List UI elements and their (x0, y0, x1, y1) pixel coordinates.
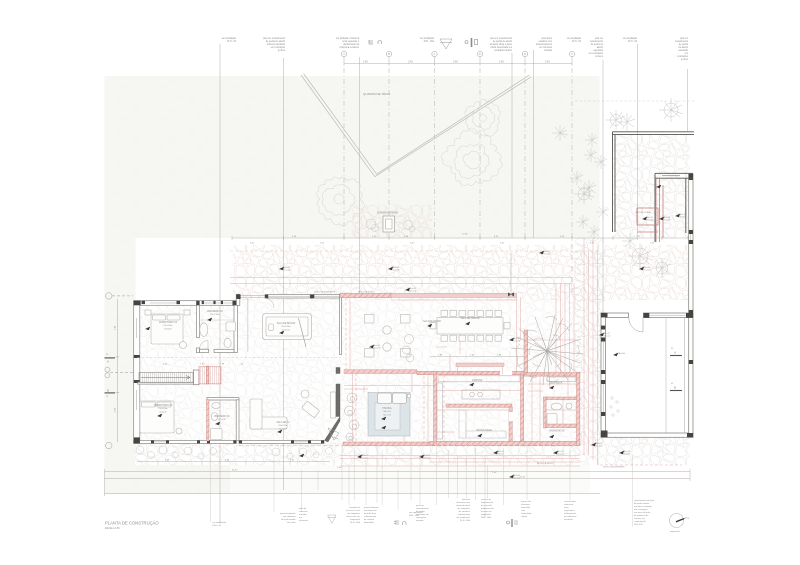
svg-text:asentado: asentado (594, 49, 604, 52)
svg-text:COZINHA: COZINHA (472, 379, 483, 382)
svg-text:de pedra de alenfo: de pedra de alenfo (493, 40, 513, 43)
svg-text:trilofe desenhado em: trilofe desenhado em (491, 46, 513, 49)
svg-text:revestimento: revestimento (590, 40, 604, 43)
svg-text:N=50.00: N=50.00 (159, 411, 166, 413)
svg-text:revestimento: revestimento (416, 507, 429, 510)
svg-text:arriscos shole o parte: arriscos shole o parte (490, 43, 513, 46)
svg-text:de tijolo furado: de tijolo furado (281, 518, 296, 521)
svg-text:PLANTA DE CONSTRUÇÃO: PLANTA DE CONSTRUÇÃO (105, 521, 159, 526)
svg-text:2.40: 2.40 (545, 61, 550, 64)
svg-text:FLH - 00d: FLH - 00d (350, 522, 361, 524)
svg-text:B: B (674, 386, 676, 390)
svg-text:je duro: je duro (680, 58, 689, 61)
svg-text:BLOCO A EXISTENTE: BLOCO A EXISTENTE (314, 291, 336, 294)
svg-text:em concreto: em concreto (539, 46, 552, 49)
svg-text:je duro: je duro (277, 49, 286, 52)
svg-text:cobertura existente: cobertura existente (339, 46, 359, 49)
svg-text:alçapão de: alçapão de (349, 506, 360, 509)
svg-text:de pedra de alenfo: de pedra de alenfo (266, 40, 286, 43)
svg-text:de máquinas: de máquinas (347, 513, 360, 515)
svg-text:DESPENSA: DESPENSA (550, 382, 563, 385)
svg-text:em alvenaria: em alvenaria (283, 515, 296, 518)
svg-text:BLOCO B NOVO: BLOCO B NOVO (537, 463, 553, 465)
svg-text:de canteias: de canteias (459, 510, 471, 513)
svg-text:FLH - 00: FLH - 00 (572, 41, 582, 43)
svg-text:piso em: piso em (595, 38, 603, 40)
svg-text:FLH - 00d: FLH - 00d (460, 520, 471, 522)
svg-text:de canteia: de canteia (364, 518, 375, 521)
svg-text:NO+0.37: NO+0.37 (623, 454, 630, 456)
svg-text:cobertura: cobertura (564, 503, 574, 506)
svg-text:NO+0.08: NO+0.08 (409, 291, 416, 293)
svg-text:arriscos asentado: arriscos asentado (267, 43, 286, 46)
svg-text:PD=2.80m: PD=2.80m (211, 314, 220, 316)
svg-text:FLH - 00d: FLH - 00d (481, 517, 492, 519)
svg-text:ver ampliação: ver ampliação (420, 37, 435, 40)
svg-text:PD=2.80m: PD=2.80m (164, 325, 173, 327)
svg-text:existente: existente (564, 518, 574, 521)
svg-text:BLOCO A NOVO: BLOCO A NOVO (358, 291, 374, 294)
svg-text:alvenaria: alvenaria (299, 519, 309, 522)
svg-text:ver ampliação: ver ampliação (567, 37, 582, 40)
svg-text:em fachada: cobertura: em fachada: cobertura (336, 37, 360, 40)
svg-text:SALA DE TV: SALA DE TV (276, 421, 290, 424)
svg-text:FLH - 00a: FLH - 00a (424, 41, 435, 43)
svg-text:metálico com: metálico com (538, 40, 552, 43)
svg-text:ver ampliação: ver ampliação (456, 516, 470, 519)
svg-text:em contrapiso: em contrapiso (634, 508, 649, 511)
svg-text:NO+0.20: NO+0.20 (595, 446, 602, 448)
svg-text:sociais; ver: sociais; ver (634, 517, 645, 520)
svg-text:revestido: revestido (521, 506, 531, 509)
svg-text:DORMITÓRIO 03: DORMITÓRIO 03 (159, 321, 178, 324)
svg-text:NA+1.00: NA+1.00 (383, 410, 390, 413)
svg-text:N=50.00: N=50.00 (164, 328, 171, 330)
svg-text:PD=2.80m: PD=2.80m (282, 326, 291, 328)
svg-text:NO+0.20: NO+0.20 (423, 458, 430, 460)
svg-text:de pedra alenfo: de pedra alenfo (634, 502, 650, 505)
svg-text:NO+1.04: NO+1.04 (383, 414, 391, 416)
svg-text:PISCINA: PISCINA (382, 407, 392, 410)
svg-text:SAUNA ÚMIDA: SAUNA ÚMIDA (476, 429, 492, 432)
svg-text:LAREIRA EXTERNA: LAREIRA EXTERNA (377, 212, 399, 215)
svg-text:BANHEIRO 05: BANHEIRO 05 (549, 430, 565, 433)
svg-text:máquinas da: máquinas da (481, 508, 494, 510)
svg-text:ver ampliação: ver ampliação (623, 37, 638, 40)
svg-text:SALA DE ESTAR: SALA DE ESTAR (423, 320, 441, 323)
svg-text:17.06: 17.06 (462, 234, 468, 236)
svg-text:apoio do deck: apoio do deck (456, 505, 471, 507)
svg-text:alenfo: alenfo (597, 47, 604, 49)
svg-text:A: A (674, 351, 676, 355)
svg-text:posicionamento: posicionamento (536, 43, 553, 46)
svg-text:de pedra: de pedra (679, 43, 689, 46)
svg-text:NO+0.08: NO+0.08 (373, 348, 380, 350)
svg-text:27.21: 27.21 (520, 477, 526, 479)
svg-text:pilar de: pilar de (299, 507, 307, 510)
svg-text:concreto: concreto (299, 510, 308, 513)
svg-text:nova: nova (564, 507, 570, 509)
svg-text:em fachada:: em fachada: (564, 501, 576, 503)
svg-text:no itens: no itens (595, 55, 604, 58)
svg-text:manutenção: manutenção (481, 501, 494, 504)
svg-text:da cobertura: da cobertura (564, 515, 577, 518)
svg-text:ver ampliação: ver ampliação (222, 37, 237, 40)
svg-text:contrapiso ardoro: contrapiso ardoro (494, 49, 513, 52)
svg-text:SALA DE JANTAR: SALA DE JANTAR (461, 317, 480, 320)
svg-text:2.40: 2.40 (499, 61, 504, 64)
svg-text:QUADRA DE TÊNIS: QUADRA DE TÊNIS (363, 91, 390, 96)
svg-text:NO+0.40: NO+0.40 (679, 217, 686, 219)
svg-text:asentado em: asentado em (416, 513, 429, 516)
svg-text:DORMITÓRIO 02: DORMITÓRIO 02 (154, 404, 173, 407)
svg-text:NO+0.20: NO+0.20 (557, 454, 564, 456)
svg-text:implantação: implantação (670, 530, 680, 533)
svg-text:PD=2.80m: PD=2.80m (279, 425, 288, 427)
svg-text:da casa de: da casa de (481, 505, 492, 507)
svg-text:BANHEIRO 03: BANHEIRO 03 (207, 310, 223, 313)
svg-text:de alenfo: de alenfo (679, 47, 689, 49)
svg-text:7 m²: 7 m² (337, 466, 342, 469)
svg-text:NO+0.37: NO+0.37 (497, 454, 504, 456)
svg-text:acesso à casa: acesso à casa (346, 510, 361, 512)
svg-text:NO+0.40: NO+0.40 (643, 270, 650, 272)
svg-text:submetendo: submetendo (364, 515, 377, 518)
svg-text:pista túnel: pista túnel (542, 37, 553, 40)
svg-text:em duro asentado: em duro asentado (634, 505, 652, 508)
svg-text:ver ampliação: ver ampliação (213, 521, 227, 524)
svg-text:NO+0.08: NO+0.08 (392, 270, 399, 272)
svg-text:NO+0.20: NO+0.20 (361, 458, 368, 460)
svg-text:FLH-100: FLH-100 (634, 524, 643, 526)
svg-text:NO+0.08: NO+0.08 (543, 254, 550, 256)
svg-text:cimentado: cimentado (521, 512, 532, 515)
svg-text:contrapiso: contrapiso (416, 516, 427, 519)
svg-text:nova seguindo o: nova seguindo o (342, 41, 360, 43)
svg-text:31.42: 31.42 (232, 469, 238, 471)
svg-text:SALA DE BILHAR: SALA DE BILHAR (277, 322, 296, 325)
svg-text:piscina ver: piscina ver (481, 510, 492, 513)
svg-text:NO+0.40: NO+0.40 (663, 220, 670, 222)
svg-text:N=50.00: N=50.00 (279, 428, 286, 430)
svg-text:piso em revestimento: piso em revestimento (490, 37, 513, 40)
svg-text:7 m²: 7 m² (492, 471, 497, 474)
svg-text:revestimento: revestimento (675, 40, 689, 43)
svg-text:piso em: piso em (416, 505, 424, 507)
svg-text:de mão fosa: de mão fosa (364, 512, 377, 515)
svg-text:posicionamento: posicionamento (280, 512, 296, 515)
svg-text:2.40: 2.40 (453, 61, 458, 64)
svg-text:alinhamento: alinhamento (564, 512, 577, 515)
svg-text:com: com (521, 510, 525, 512)
svg-text:de pedra de: de pedra de (591, 43, 604, 46)
svg-text:em: em (685, 53, 688, 55)
svg-text:2.40: 2.40 (408, 61, 413, 64)
svg-text:seguindo o: seguindo o (564, 510, 575, 512)
svg-text:alvenaria: alvenaria (521, 503, 531, 506)
svg-text:ampliação: ampliação (350, 518, 361, 521)
svg-text:de potência da: de potência da (634, 514, 649, 517)
svg-text:2.40: 2.40 (363, 61, 368, 64)
svg-text:DEPÓSITO/CASA: DEPÓSITO/CASA (635, 211, 651, 214)
svg-text:contrapiso: contrapiso (677, 55, 688, 58)
svg-text:B: B (107, 389, 109, 393)
svg-text:continuação: continuação (634, 520, 647, 523)
svg-text:NO+0.20: NO+0.20 (603, 336, 610, 338)
svg-text:piso em revestimento: piso em revestimento (263, 37, 286, 40)
svg-text:em alvenaria: em alvenaria (364, 509, 377, 512)
svg-text:rúpolo: rúpolo (521, 515, 528, 518)
svg-text:revestimento de piso: revestimento de piso (634, 499, 655, 502)
svg-text:armado: armado (416, 519, 424, 522)
svg-text:da piscina ver: da piscina ver (347, 515, 361, 518)
svg-text:de pedra: de pedra (416, 510, 425, 513)
svg-text:PD=2.80: PD=2.80 (218, 419, 225, 421)
svg-text:acesso de: acesso de (481, 499, 492, 501)
svg-text:FLH - 00: FLH - 00 (227, 41, 237, 43)
svg-text:de canto: de canto (287, 521, 296, 524)
svg-text:NA+0.40: NA+0.40 (618, 352, 625, 355)
svg-text:em duro de linho: em duro de linho (634, 511, 651, 514)
svg-text:em contrapiso: em contrapiso (271, 46, 286, 49)
svg-text:base de: base de (462, 499, 471, 501)
svg-text:de máquinas: de máquinas (457, 508, 470, 510)
svg-text:alvenaria para: alvenaria para (456, 501, 471, 504)
svg-text:NO+0.08: NO+0.08 (513, 341, 520, 343)
svg-text:FLH - 00: FLH - 00 (213, 525, 222, 527)
svg-text:submetendo: submetendo (458, 513, 471, 516)
svg-text:alinhamento da: alinhamento da (343, 43, 359, 46)
svg-text:em contrapiso: em contrapiso (589, 52, 604, 55)
svg-text:piso em: piso em (680, 38, 688, 40)
svg-text:armado: armado (544, 49, 553, 52)
svg-text:armado: armado (299, 513, 307, 516)
svg-text:BLOCO B EXISTENTE: BLOCO B EXISTENTE (603, 467, 625, 469)
svg-text:NO+0.08: NO+0.08 (283, 270, 290, 272)
svg-text:ampliação: ampliação (481, 513, 492, 516)
svg-text:A: A (107, 360, 109, 364)
svg-text:FLH - 00: FLH - 00 (628, 41, 638, 43)
svg-text:ESCALA 1:50: ESCALA 1:50 (105, 527, 120, 530)
svg-text:BANHEIRO 02: BANHEIRO 02 (214, 415, 230, 418)
svg-text:preenchimento: preenchimento (364, 506, 379, 509)
svg-text:demolidas: demolidas (364, 522, 375, 524)
svg-text:asentado: asentado (679, 49, 689, 52)
svg-text:PD=2.80m: PD=2.80m (159, 408, 168, 410)
svg-text:branco de: branco de (521, 500, 532, 503)
svg-text:em: em (299, 517, 302, 519)
svg-text:NO+0.40: NO+0.40 (646, 220, 653, 222)
